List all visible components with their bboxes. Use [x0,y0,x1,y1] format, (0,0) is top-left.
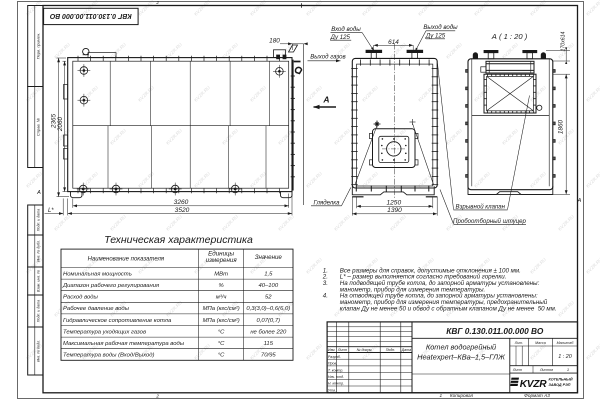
svg-text:Пров.: Пров. [328,362,337,366]
svg-text:2: 2 [155,0,159,5]
svg-text:1250: 1250 [386,200,401,207]
svg-text:измерения: измерения [206,257,238,264]
svg-text:КОТЕЛЬНЫЙ: КОТЕЛЬНЫЙ [549,378,573,382]
svg-text:Гидравлическое сопротивление к: Гидравлическое сопротивление котла [63,318,172,324]
svg-text:Подп. и дата: Подп. и дата [36,300,40,323]
svg-text:°С: °С [218,329,225,335]
svg-text:А ( 1 : 20 ): А ( 1 : 20 ) [491,32,528,41]
svg-text:Лист: Лист [512,368,522,372]
svg-text:Листов: Листов [539,368,553,372]
svg-text:1390: 1390 [387,207,402,214]
svg-text:Копировал: Копировал [450,393,474,398]
svg-text:Дата: Дата [401,348,411,352]
svg-text:Максимальная рабочая температу: Максимальная рабочая температура воды [63,341,185,347]
svg-text:Масса: Масса [535,341,546,345]
svg-text:Т. контр.: Т. контр. [328,368,344,372]
svg-text:Наименование показателя: Наименование показателя [88,257,165,263]
svg-text:1,5: 1,5 [264,271,273,277]
svg-text:Значение: Значение [255,254,283,261]
svg-text:KVZR: KVZR [520,379,547,390]
svg-text:Heatexpert–КВа–1,5–ГЛЖ: Heatexpert–КВа–1,5–ГЛЖ [417,353,506,362]
svg-text:Выход газов: Выход газов [310,54,346,61]
svg-text:1 : 20: 1 : 20 [558,354,572,360]
svg-text:Выход воды: Выход воды [423,24,458,31]
svg-text:2: 2 [155,394,159,399]
svg-text:А: А [322,95,329,105]
svg-text:Масштаб: Масштаб [557,341,575,345]
svg-text:КВГ 0.130.011.00.000 ВО: КВГ 0.130.011.00.000 ВО [446,326,544,336]
svg-text:Котел водогрейный: Котел водогрейный [426,343,496,352]
svg-text:Нач. отд.: Нач. отд. [328,375,344,379]
svg-text:Гляделка: Гляделка [314,199,341,206]
svg-text:КВГ 0.130.011.00.000 ВО: КВГ 0.130.011.00.000 ВО [49,12,131,19]
svg-text:170х614: 170х614 [561,31,567,51]
svg-text:Лит.: Лит. [514,341,523,345]
svg-text:м³/ч: м³/ч [216,295,227,301]
svg-text:2060: 2060 [57,116,64,132]
svg-text:3.: 3. [323,280,328,287]
svg-text:А: А [577,198,582,204]
svg-text:3260: 3260 [174,199,189,206]
svg-text:4.: 4. [323,293,328,300]
svg-text:Ду 125: Ду 125 [330,34,351,41]
svg-text:Лист: Лист [337,348,347,352]
svg-text:Вход воды: Вход воды [331,26,361,33]
svg-text:L*: L* [48,208,54,214]
svg-text:Формат А3: Формат А3 [524,393,550,398]
svg-text:Температура воды (Вход/Выход): Температура воды (Вход/Выход) [63,353,154,359]
svg-text:Изм.: Изм. [328,348,336,352]
svg-text:А: А [36,190,41,196]
svg-text:Справ. №: Справ. № [35,117,40,136]
svg-text:Номинальная мощность: Номинальная мощность [63,271,132,277]
svg-text:Перв. примен.: Перв. примен. [35,33,40,60]
svg-text:ЗАВОД РЭП: ЗАВОД РЭП [549,383,571,387]
svg-text:клапан Ду не менее 50 и обвод: клапан Ду не менее 50 и обвод с обратным… [340,305,557,312]
svg-text:Пробоотборный штуцер: Пробоотборный штуцер [453,218,527,225]
svg-text:Утв.: Утв. [328,388,336,392]
svg-text:0,07(0,7): 0,07(0,7) [257,318,281,324]
svg-text:3520: 3520 [175,207,190,214]
svg-text:Инв. № дубл.: Инв. № дубл. [36,240,40,262]
svg-text:Подп.: Подп. [386,348,396,352]
svg-text:%: % [219,283,224,289]
svg-text:Температура уходящих газов: Температура уходящих газов [63,329,146,335]
svg-text:40–100: 40–100 [258,283,278,289]
svg-text:70/95: 70/95 [261,353,276,359]
svg-text:180: 180 [269,38,280,45]
svg-text:Техническая характеристика: Техническая характеристика [104,234,253,246]
svg-text:°С: °С [218,353,225,359]
svg-text:№ докум.: № докум. [357,348,373,352]
svg-text:°С: °С [218,341,225,347]
svg-text:Ду 125: Ду 125 [425,32,446,39]
svg-text:Взам. инв. №: Взам. инв. № [36,270,40,292]
svg-text:Взрывной клапан: Взрывной клапан [456,203,506,210]
svg-text:0,3(3,0)–0,6(6,0): 0,3(3,0)–0,6(6,0) [246,306,290,312]
svg-text:115: 115 [264,341,274,347]
svg-text:52: 52 [265,295,272,301]
svg-text:Подп. и дата: Подп. и дата [36,209,40,232]
svg-text:МПа (кгс/см²): МПа (кгс/см²) [203,318,240,324]
svg-text:1860: 1860 [558,119,565,134]
svg-text:Н. контр.: Н. контр. [328,382,344,386]
svg-text:Инв. № подл.: Инв. № подл. [36,340,40,362]
svg-text:Разраб.: Разраб. [328,355,341,359]
svg-text:не более 220: не более 220 [250,329,287,335]
svg-text:Расход воды: Расход воды [63,295,99,301]
svg-text:МПа (кгс/см²): МПа (кгс/см²) [203,306,240,312]
svg-text:1: 1 [439,393,442,398]
svg-text:614: 614 [388,39,399,46]
svg-text:1: 1 [567,367,569,372]
svg-text:Диапазон рабочего регулировани: Диапазон рабочего регулирования [62,283,160,289]
svg-text:МВт: МВт [214,271,228,277]
svg-text:Рабочее давление воды: Рабочее давление воды [63,306,130,312]
